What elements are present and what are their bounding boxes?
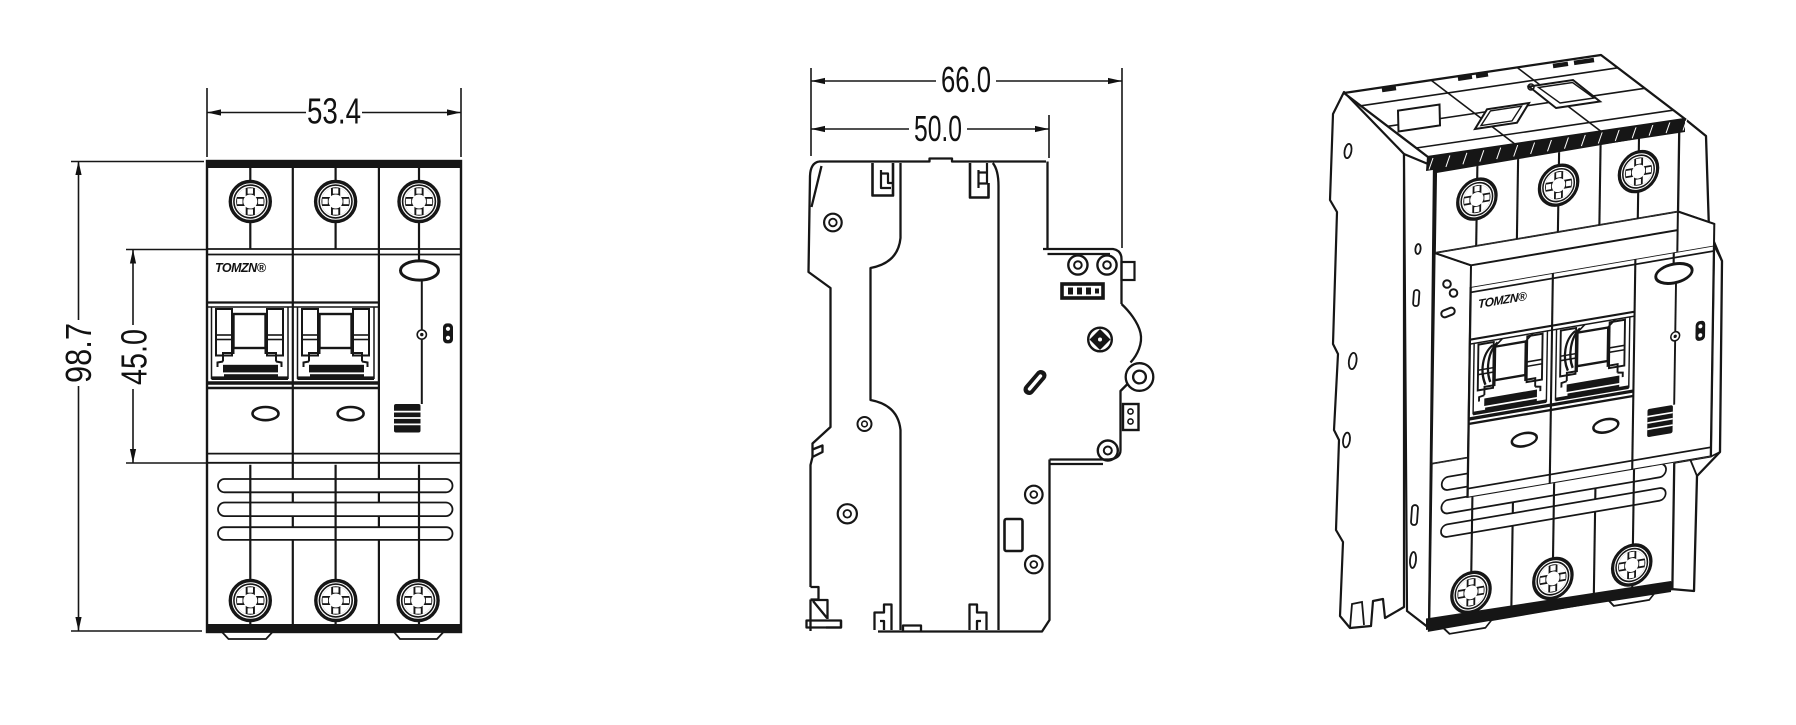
svg-text:45.0: 45.0 xyxy=(114,329,155,385)
svg-text:66.0: 66.0 xyxy=(941,59,991,100)
svg-text:98.7: 98.7 xyxy=(58,323,99,383)
svg-text:53.4: 53.4 xyxy=(307,91,361,132)
svg-text:50.0: 50.0 xyxy=(914,108,962,149)
